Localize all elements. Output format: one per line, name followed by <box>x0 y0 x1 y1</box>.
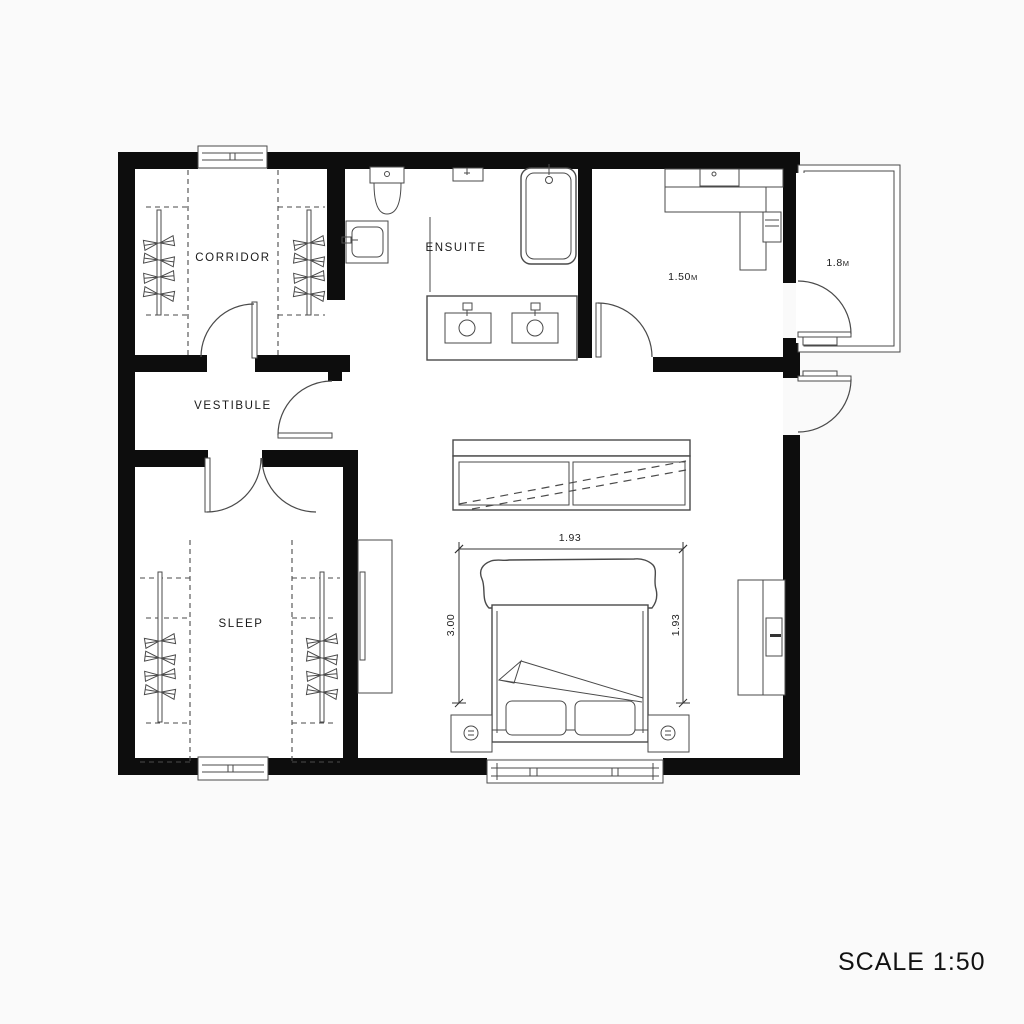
wall-unit <box>763 212 781 242</box>
room-label-vestibule: VESTIBULE <box>194 400 272 412</box>
pillow <box>575 701 635 735</box>
dresser <box>738 580 785 695</box>
window-bottom-left <box>198 757 268 780</box>
bed <box>481 559 657 742</box>
nightstand-right <box>648 715 689 752</box>
closet-rail <box>157 210 161 315</box>
double-vanity <box>427 296 577 360</box>
scale-label: SCALE 1:50 <box>838 948 986 976</box>
room-label-corridor: CORRIDOR <box>195 252 270 264</box>
closet-rail <box>307 210 311 315</box>
nightstand-left <box>451 715 492 752</box>
dim-label-left: 3.00 <box>445 614 457 636</box>
room-label-sleep: SLEEP <box>218 618 263 630</box>
headboard <box>481 559 657 608</box>
annotation-utility: 1.50M <box>668 271 698 283</box>
door-balcony-lower <box>798 376 851 432</box>
window-top <box>198 146 267 168</box>
annotation-balcony: 1.8M <box>826 257 849 269</box>
balcony <box>796 165 900 380</box>
sink-small <box>342 221 388 263</box>
sliding-wardrobe <box>453 440 690 510</box>
tall-cabinet <box>358 540 392 693</box>
closet-rail <box>320 572 324 722</box>
room-label-ensuite: ENSUITE <box>425 242 486 254</box>
shelf <box>453 168 483 181</box>
window-bottom-center <box>487 760 663 783</box>
dim-label-top: 1.93 <box>559 532 581 544</box>
bathtub <box>521 164 576 264</box>
handle <box>770 634 781 637</box>
appliance <box>700 169 739 186</box>
dim-label-right: 1.93 <box>670 614 682 636</box>
floor-plan: 1.93 3.00 1.93 CORRIDOR VESTIBULE SLEEP … <box>0 0 1024 1024</box>
pillow <box>506 701 566 735</box>
closet-rail <box>158 572 162 722</box>
